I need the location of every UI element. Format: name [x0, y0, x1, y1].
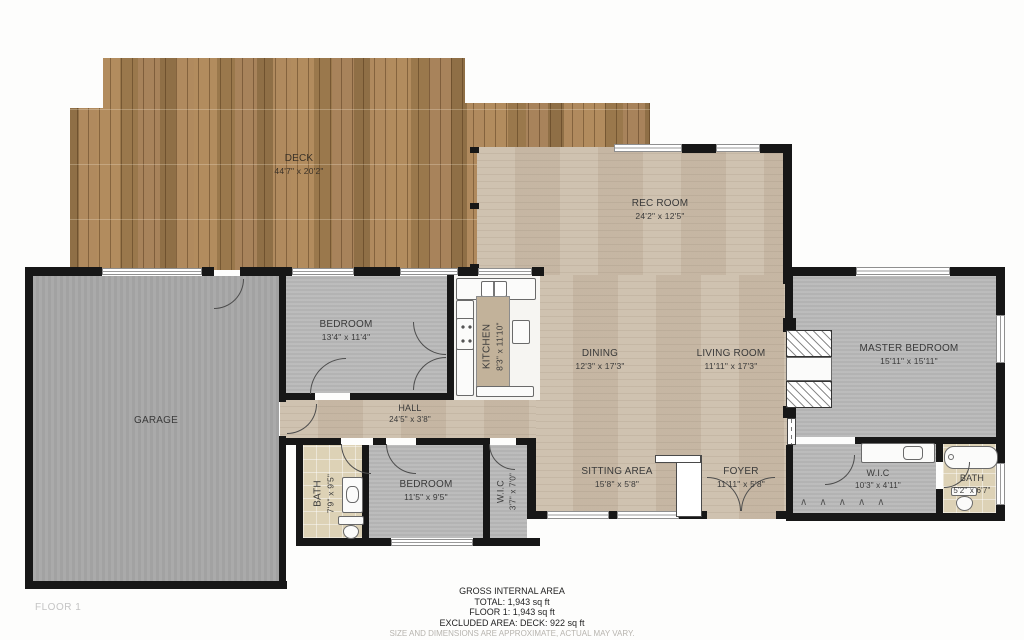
hanger-rail-icon	[800, 497, 930, 509]
room-label-rec-room: REC ROOM 24'2" x 12'5"	[600, 197, 720, 222]
window	[716, 144, 760, 152]
summary-total: TOTAL: 1,943 sq ft	[312, 597, 712, 608]
wall-segment	[447, 275, 454, 395]
summary-floor1: FLOOR 1: 1,943 sq ft	[312, 607, 712, 618]
wall-segment	[776, 511, 788, 519]
wall-segment	[285, 393, 315, 400]
room-label-bedroom2: BEDROOM 11'5" x 9'5"	[366, 478, 486, 503]
room-label-kitchen: KITCHEN 8'3" x 11'10"	[480, 292, 505, 402]
toilet-tank	[338, 516, 364, 525]
wall-segment	[416, 438, 490, 445]
window	[391, 539, 473, 546]
summary-disclaimer: SIZE AND DIMENSIONS ARE APPROXIMATE, ACT…	[312, 629, 712, 640]
wall-segment	[532, 267, 544, 276]
room-label-bath1: BATH 7'9" x 9'5"	[311, 439, 336, 549]
wall-segment	[296, 443, 303, 539]
wall-segment	[25, 581, 287, 589]
wall-segment	[786, 513, 1005, 521]
wall-segment	[936, 444, 943, 462]
room-label-deck: DECK 44'7" x 20'2"	[239, 152, 359, 177]
summary-title: GROSS INTERNAL AREA	[312, 586, 712, 597]
stove	[456, 318, 474, 350]
wall-tick	[470, 147, 479, 153]
tub-faucet	[948, 454, 954, 460]
window	[400, 268, 458, 275]
summary-excluded: EXCLUDED AREA: DECK: 922 sq ft	[312, 618, 712, 629]
wall-segment	[786, 267, 856, 276]
floor-plan: DECK 44'7" x 20'2" REC ROOM 24'2" x 12'5…	[0, 0, 1024, 640]
partial-wall	[655, 455, 701, 463]
closet-hatched	[786, 381, 832, 408]
area-summary: GROSS INTERNAL AREA TOTAL: 1,943 sq ft F…	[312, 586, 712, 640]
pocket-door	[787, 418, 796, 445]
bath1-sink	[346, 486, 359, 503]
room-label-bath2: BATH 5'2" x 6'7"	[932, 473, 1012, 496]
room-label-master-bedroom: MASTER BEDROOM 15'11" x 15'11"	[819, 342, 999, 367]
room-label-sitting-area: SITTING AREA 15'8" x 5'8"	[557, 465, 677, 490]
garage-floor	[33, 276, 279, 581]
wall-segment	[996, 267, 1005, 315]
wall-tick	[470, 203, 479, 209]
room-label-bedroom1: BEDROOM 13'4" x 11'4"	[286, 318, 406, 343]
wall-segment	[279, 436, 286, 589]
wall-segment	[296, 538, 391, 546]
floor-tag: FLOOR 1	[35, 602, 81, 613]
window	[617, 511, 679, 519]
room-label-wic2: W.I.C 10'3" x 4'11"	[818, 468, 938, 491]
wall-segment	[25, 267, 102, 276]
window	[614, 144, 682, 152]
wall-segment	[373, 438, 386, 445]
window	[547, 511, 609, 519]
wall-segment	[783, 144, 792, 284]
wall-segment	[279, 267, 286, 402]
room-label-dining: DINING 12'3" x 17'3"	[540, 347, 660, 372]
room-label-garage: GARAGE	[96, 414, 216, 427]
wall-segment	[527, 438, 536, 519]
wic2-sink	[903, 446, 923, 460]
wall-segment	[202, 267, 214, 276]
wall-segment	[530, 511, 547, 519]
wall-segment	[682, 144, 716, 153]
room-label-foyer: FOYER 11'11" x 5'8"	[681, 465, 801, 490]
wall-segment	[996, 363, 1005, 463]
window	[292, 268, 354, 275]
room-label-hall: HALL 24'5" x 3'8"	[350, 403, 470, 425]
fridge	[512, 320, 530, 344]
room-label-wic1: W.I.C 3'7" x 7'0"	[495, 437, 518, 547]
window	[478, 268, 532, 275]
wic2-vanity	[861, 443, 935, 463]
wall-segment	[25, 267, 33, 589]
window	[856, 267, 950, 275]
wall-segment	[350, 393, 454, 400]
wall-segment	[609, 511, 617, 519]
window	[102, 268, 202, 275]
room-label-living-room: LIVING ROOM 11'11" x 17'3"	[671, 347, 791, 372]
wall-segment	[354, 267, 400, 276]
